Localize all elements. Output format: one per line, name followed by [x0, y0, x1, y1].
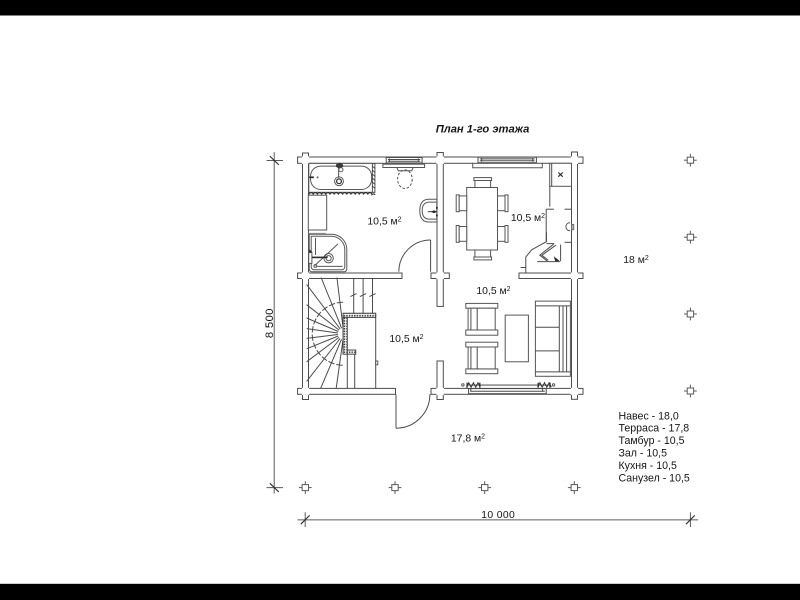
svg-text:Кухня - 10,5: Кухня - 10,5 [619, 460, 677, 472]
svg-text:10 000: 10 000 [481, 510, 515, 521]
svg-text:10,5 м2: 10,5 м2 [367, 217, 401, 228]
svg-text:8 500: 8 500 [264, 308, 276, 338]
svg-text:Навес - 18,0: Навес - 18,0 [619, 410, 679, 422]
svg-text:Тамбур - 10,5: Тамбур - 10,5 [619, 435, 685, 447]
svg-text:10,5 м2: 10,5 м2 [476, 286, 510, 297]
svg-text:17,8 м2: 17,8 м2 [451, 434, 485, 445]
svg-text:План 1-го этажа: План 1-го этажа [436, 124, 530, 136]
svg-text:10,5 м2: 10,5 м2 [511, 213, 545, 224]
svg-text:Санузел - 10,5: Санузел - 10,5 [619, 472, 690, 484]
svg-text:Терраса - 17,8: Терраса - 17,8 [619, 423, 690, 435]
svg-text:10,5 м2: 10,5 м2 [389, 334, 423, 345]
svg-text:Зал - 10,5: Зал - 10,5 [619, 448, 668, 460]
